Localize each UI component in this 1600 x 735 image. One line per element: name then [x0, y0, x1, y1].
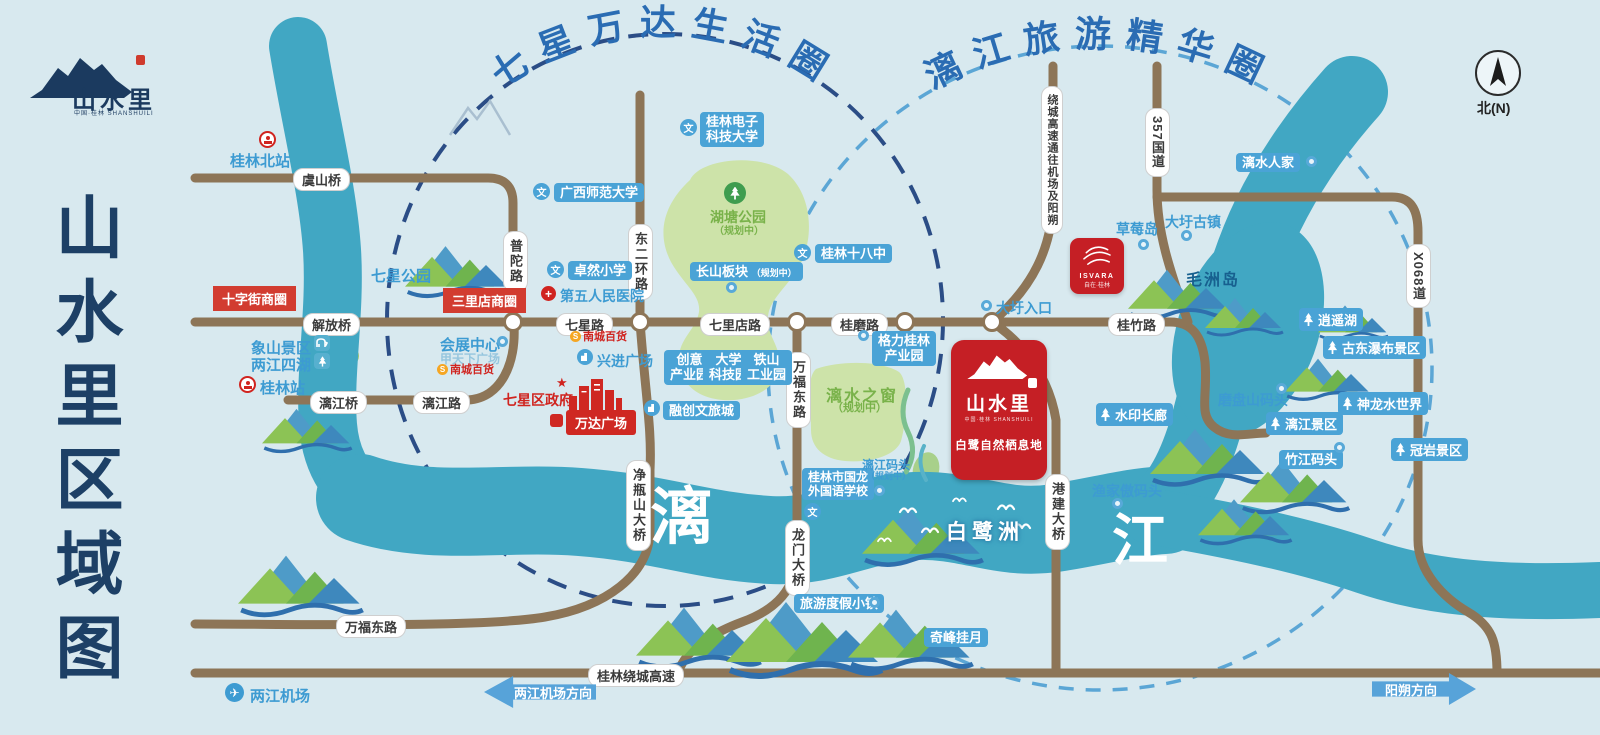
pill-lijiang-bridge: 漓江桥: [310, 391, 367, 414]
isvara-brand: ISVARA: [1070, 273, 1124, 280]
lijiang-dock-marker: [874, 485, 885, 496]
strawberry-island-label: 草莓岛: [1116, 219, 1158, 239]
project-seal-icon: [1028, 378, 1037, 388]
school-icon-guet: 文: [680, 119, 697, 136]
gudong-waterfall-label: 古东瀑布景区: [1323, 336, 1426, 359]
river-char-li: 漓: [650, 466, 712, 556]
tieshan-park-label: 铁山 工业园: [741, 350, 792, 385]
elephant-icon: [314, 335, 330, 351]
guilin-station: 桂林站: [260, 377, 305, 398]
wanda-buildings-icon: [568, 378, 624, 414]
zhujiang-dock-label: 竹江码头: [1279, 450, 1343, 469]
lijiang-dock-planning: （规划中）: [866, 469, 911, 482]
maozhou-island-label: 毛洲岛: [1186, 266, 1240, 290]
geli-line1: 格力桂林: [878, 333, 930, 348]
zhujiang-dock-marker: [1334, 442, 1345, 453]
guet-label: 桂林电子 科技大学: [700, 112, 764, 147]
changshan-text: 长山板块: [696, 264, 748, 279]
nancheng-store-2-label: 南城百货: [583, 331, 627, 343]
resort-town-marker: [869, 597, 880, 608]
gxnu-label: 广西师范大学: [554, 183, 644, 202]
logo-seal-icon: [136, 55, 145, 65]
brand-logo: 山水里 中国·桂林 SHANSHUILI: [28, 52, 168, 122]
tree-icon-shuiyin: [1100, 408, 1111, 421]
qixing-park-label: 七星公园: [371, 265, 431, 286]
tree-river-icon: [314, 353, 330, 369]
egret-island-label: 白鹭洲: [946, 516, 1024, 546]
strawberry-island-marker: [1138, 239, 1149, 250]
guanyan-text: 冠岩景区: [1410, 440, 1462, 459]
compass-label: 北(N): [1477, 98, 1510, 118]
daxu-town-marker: [1181, 230, 1192, 241]
changshan-block-label: 长山板块 （规划中）: [690, 262, 803, 281]
school-icon-gxnu: 文: [533, 183, 550, 200]
no18-school-label: 桂林十八中: [815, 244, 892, 263]
project-mountain-icon: [964, 352, 1034, 386]
pill-wanfu-road-bottom: 万福东路: [336, 615, 406, 638]
logo-sub-en: SHANSHUILI: [108, 111, 154, 117]
airplane-icon: ✈: [225, 683, 244, 702]
nancheng-store-2: S南城百货: [570, 328, 627, 344]
qifeng-label: 奇峰挂月: [924, 628, 988, 647]
zhuoran-school-label: 卓然小学: [568, 261, 632, 280]
project-tagline: 白鹭自然栖息地: [951, 437, 1047, 453]
compass-icon: [1475, 50, 1521, 96]
huizhan-marker: [497, 336, 508, 347]
rongchuang-icon: [644, 400, 660, 416]
geli-line2: 产业园: [878, 348, 930, 363]
nancheng-store-1: S南城百货: [437, 361, 494, 377]
nancheng-icon: S: [437, 364, 448, 375]
isvara-swirl-icon: [1080, 242, 1114, 268]
nancheng-store-1-label: 南城百货: [450, 364, 494, 376]
xiangshan-scenic-line2: 两江四湖: [251, 354, 311, 375]
pill-lijiang-road: 漓江路: [413, 391, 470, 414]
pill-qilidian-road: 七里店路: [700, 313, 770, 336]
pill-ring-expressway-airport: 绕城高速通往机场及阳朔: [1041, 86, 1063, 234]
shuiyin-text: 水印长廊: [1115, 405, 1167, 424]
pill-yushan-bridge: 虞山桥: [293, 168, 350, 191]
guanyan-scenic-label: 冠岩景区: [1391, 438, 1468, 461]
nancheng-icon-2: S: [570, 331, 581, 342]
lishuirenjia-marker: [1306, 156, 1317, 167]
railway-icon-main: [239, 376, 256, 393]
shenlong-water-world-label: 神龙水世界: [1338, 392, 1428, 415]
daxu-entry-marker: [981, 300, 992, 311]
yujiaao-dock-marker: [1112, 498, 1123, 509]
pill-x068: X068道: [1406, 244, 1431, 308]
guilin-north-station: 桂林北站: [230, 150, 290, 171]
side-title: 山水里区域图: [34, 192, 133, 696]
fifth-hospital-label: 第五人民医院: [560, 286, 644, 306]
shanshuili-project-box: 山水里 中国·桂林 SHANSHUILI 白鹭自然栖息地: [951, 340, 1047, 480]
isvara-sub: 自在·桂林: [1070, 280, 1124, 289]
pill-g357: 357国道: [1145, 108, 1170, 177]
pill-jingpingshan-bridge: 净瓶山大桥: [626, 460, 651, 551]
lishuirenjia-label: 漓水人家: [1236, 153, 1300, 172]
tree-icon-guanyan: [1395, 443, 1406, 456]
project-sub: 中国·桂林 SHANSHUILI: [951, 416, 1047, 423]
school-icon-zhuoran: 文: [547, 261, 564, 278]
geli-marker: [858, 330, 869, 341]
qixing-government-label: 七星区政府: [503, 390, 573, 410]
pill-gangjian-bridge: 港建大桥: [1045, 474, 1070, 550]
logo-sub-cn: 中国·桂林: [74, 111, 105, 117]
hospital-icon: +: [541, 286, 556, 301]
project-name: 山水里: [951, 389, 1047, 416]
project-sub-en: SHANSHUILI: [994, 417, 1034, 423]
yujiaao-dock-label: 渔家傲码头: [1092, 481, 1162, 501]
tieshan-line1: 铁山: [747, 352, 786, 367]
tree-icon-gudong: [1327, 341, 1338, 354]
tree-icon-lijiang-scenic: [1270, 417, 1281, 430]
xiaoyaohu-label: 逍遥湖: [1299, 308, 1363, 331]
daxu-town-label: 大圩古镇: [1165, 212, 1221, 232]
daxu-entry-label: 大圩入口: [996, 298, 1052, 318]
pill-putuo-road: 普陀路: [503, 231, 528, 292]
pill-guizhu-road: 桂竹路: [1108, 313, 1165, 336]
lijiang-scenic-text: 漓江景区: [1285, 414, 1337, 433]
tree-icon-shenlong: [1342, 397, 1353, 410]
lishuizhichuang-planning: （规划中）: [832, 399, 887, 415]
government-star-icon: ★: [556, 375, 568, 391]
tree-icon-xiaoyaohu: [1303, 313, 1314, 326]
shizijie-business-circle: 十字街商圈: [213, 286, 296, 311]
pill-longmen-bridge: 龙门大桥: [785, 520, 810, 596]
xingjin-plaza-icon: [577, 349, 593, 365]
xiaoyaohu-text: 逍遥湖: [1318, 310, 1357, 329]
rongchuang-label: 融创文旅城: [663, 401, 740, 420]
tieshan-line2: 工业园: [747, 367, 786, 382]
railway-icon-north: [259, 131, 276, 148]
sanlidian-business-circle: 三里店商圈: [443, 288, 526, 313]
xingjin-plaza-label: 兴进广场: [597, 351, 653, 371]
park-tree-icon: [724, 182, 746, 204]
school-icon-guolong: 文: [804, 503, 821, 520]
changshan-marker: [726, 282, 737, 293]
geli-park-label: 格力桂林 产业园: [872, 331, 936, 366]
liangjiang-airport-label: 两江机场: [250, 685, 310, 706]
lijiang-scenic-label: 漓江景区: [1266, 412, 1343, 435]
arc-title-right: 漓江旅游精华圈: [918, 13, 1282, 96]
pill-jiefang-bridge: 解放桥: [303, 313, 360, 336]
project-sub-cn: 中国·桂林: [964, 417, 991, 423]
guolong-line2: 外国语学校: [808, 484, 868, 498]
isvara-box: ISVARA 自在·桂林: [1070, 238, 1124, 294]
map-stage: 七星万达生活圈 漓江旅游精华圈 山水里 中国·桂林 SHANSHUILI 山水里…: [0, 0, 1600, 735]
wanda-plaza-label: 万达广场: [566, 410, 636, 435]
guet-line1: 桂林电子: [706, 114, 758, 129]
mopanshan-dock-marker: [1276, 383, 1287, 394]
shuiyin-corridor-label: 水印长廊: [1096, 403, 1173, 426]
shopping-bag-icon: [550, 414, 563, 427]
guolong-line1: 桂林市国龙: [808, 470, 868, 484]
changshan-planning: （规划中）: [752, 268, 797, 278]
arc-title-left: 七星万达生活圈: [484, 2, 846, 95]
guet-line2: 科技大学: [706, 129, 758, 144]
pill-ring-highway: 桂林绕城高速: [588, 664, 684, 687]
school-icon-no18: 文: [794, 244, 811, 261]
shenlong-text: 神龙水世界: [1357, 394, 1422, 413]
gudong-text: 古东瀑布景区: [1342, 338, 1420, 357]
logo-sub: 中国·桂林 SHANSHUILI: [74, 108, 154, 117]
hutang-park-planning: （规划中）: [714, 222, 764, 237]
